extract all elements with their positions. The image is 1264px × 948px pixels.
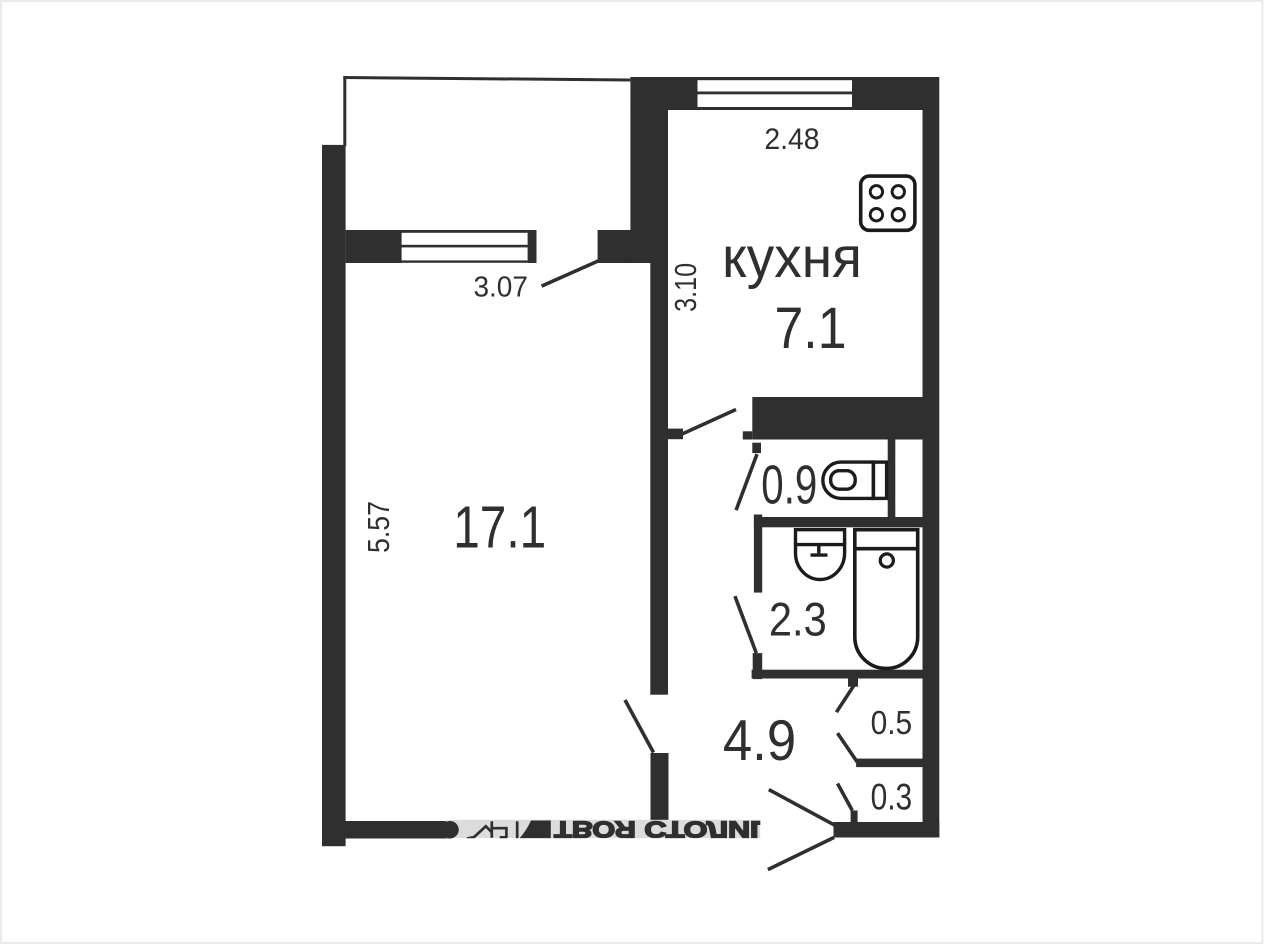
svg-text:5.57: 5.57 — [363, 501, 396, 553]
svg-text:кухня: кухня — [722, 226, 862, 290]
svg-text:4.9: 4.9 — [723, 709, 796, 773]
svg-text:2.3: 2.3 — [769, 593, 827, 646]
svg-text:0.9: 0.9 — [761, 453, 817, 515]
svg-text:0.3: 0.3 — [871, 777, 913, 818]
svg-text:0.5: 0.5 — [871, 704, 913, 742]
svg-text:3.10: 3.10 — [669, 263, 703, 312]
svg-text:2.48: 2.48 — [764, 123, 819, 156]
svg-text:7.1: 7.1 — [775, 296, 847, 361]
svg-text:17.1: 17.1 — [453, 494, 546, 561]
svg-text:3.07: 3.07 — [473, 272, 528, 304]
